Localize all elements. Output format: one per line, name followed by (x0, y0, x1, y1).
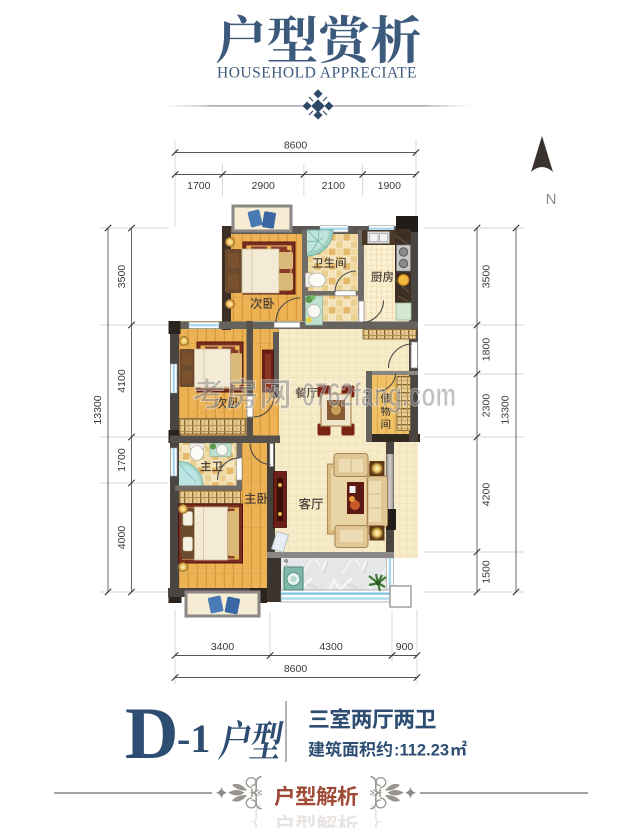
svg-text:1700: 1700 (116, 448, 128, 472)
svg-text:8600: 8600 (284, 663, 308, 675)
svg-text:0762fang.com: 0762fang.com (302, 377, 456, 414)
svg-text:4100: 4100 (116, 369, 128, 393)
svg-text:1800: 1800 (481, 338, 493, 362)
svg-text:13300: 13300 (500, 395, 512, 424)
svg-text:-1: -1 (177, 716, 210, 761)
svg-text::112.23: :112.23 (394, 742, 449, 760)
svg-text:4300: 4300 (319, 641, 343, 653)
svg-text:900: 900 (396, 641, 414, 653)
svg-text:HOUSEHOLD APPRECIATE: HOUSEHOLD APPRECIATE (217, 65, 417, 82)
svg-text:N: N (546, 191, 557, 208)
svg-text:2100: 2100 (322, 180, 346, 192)
svg-text:D: D (125, 693, 178, 775)
svg-text:1900: 1900 (378, 180, 402, 192)
svg-text:8600: 8600 (284, 140, 308, 152)
svg-text:4000: 4000 (116, 526, 128, 550)
svg-text:2900: 2900 (252, 180, 276, 192)
svg-text:1500: 1500 (481, 560, 493, 584)
svg-text:2300: 2300 (481, 394, 493, 418)
svg-text:3500: 3500 (481, 265, 493, 289)
svg-text:4200: 4200 (481, 483, 493, 507)
svg-text:3500: 3500 (116, 265, 128, 289)
svg-text:13300: 13300 (92, 395, 104, 424)
svg-text:1700: 1700 (187, 180, 211, 192)
svg-text:3400: 3400 (211, 641, 235, 653)
